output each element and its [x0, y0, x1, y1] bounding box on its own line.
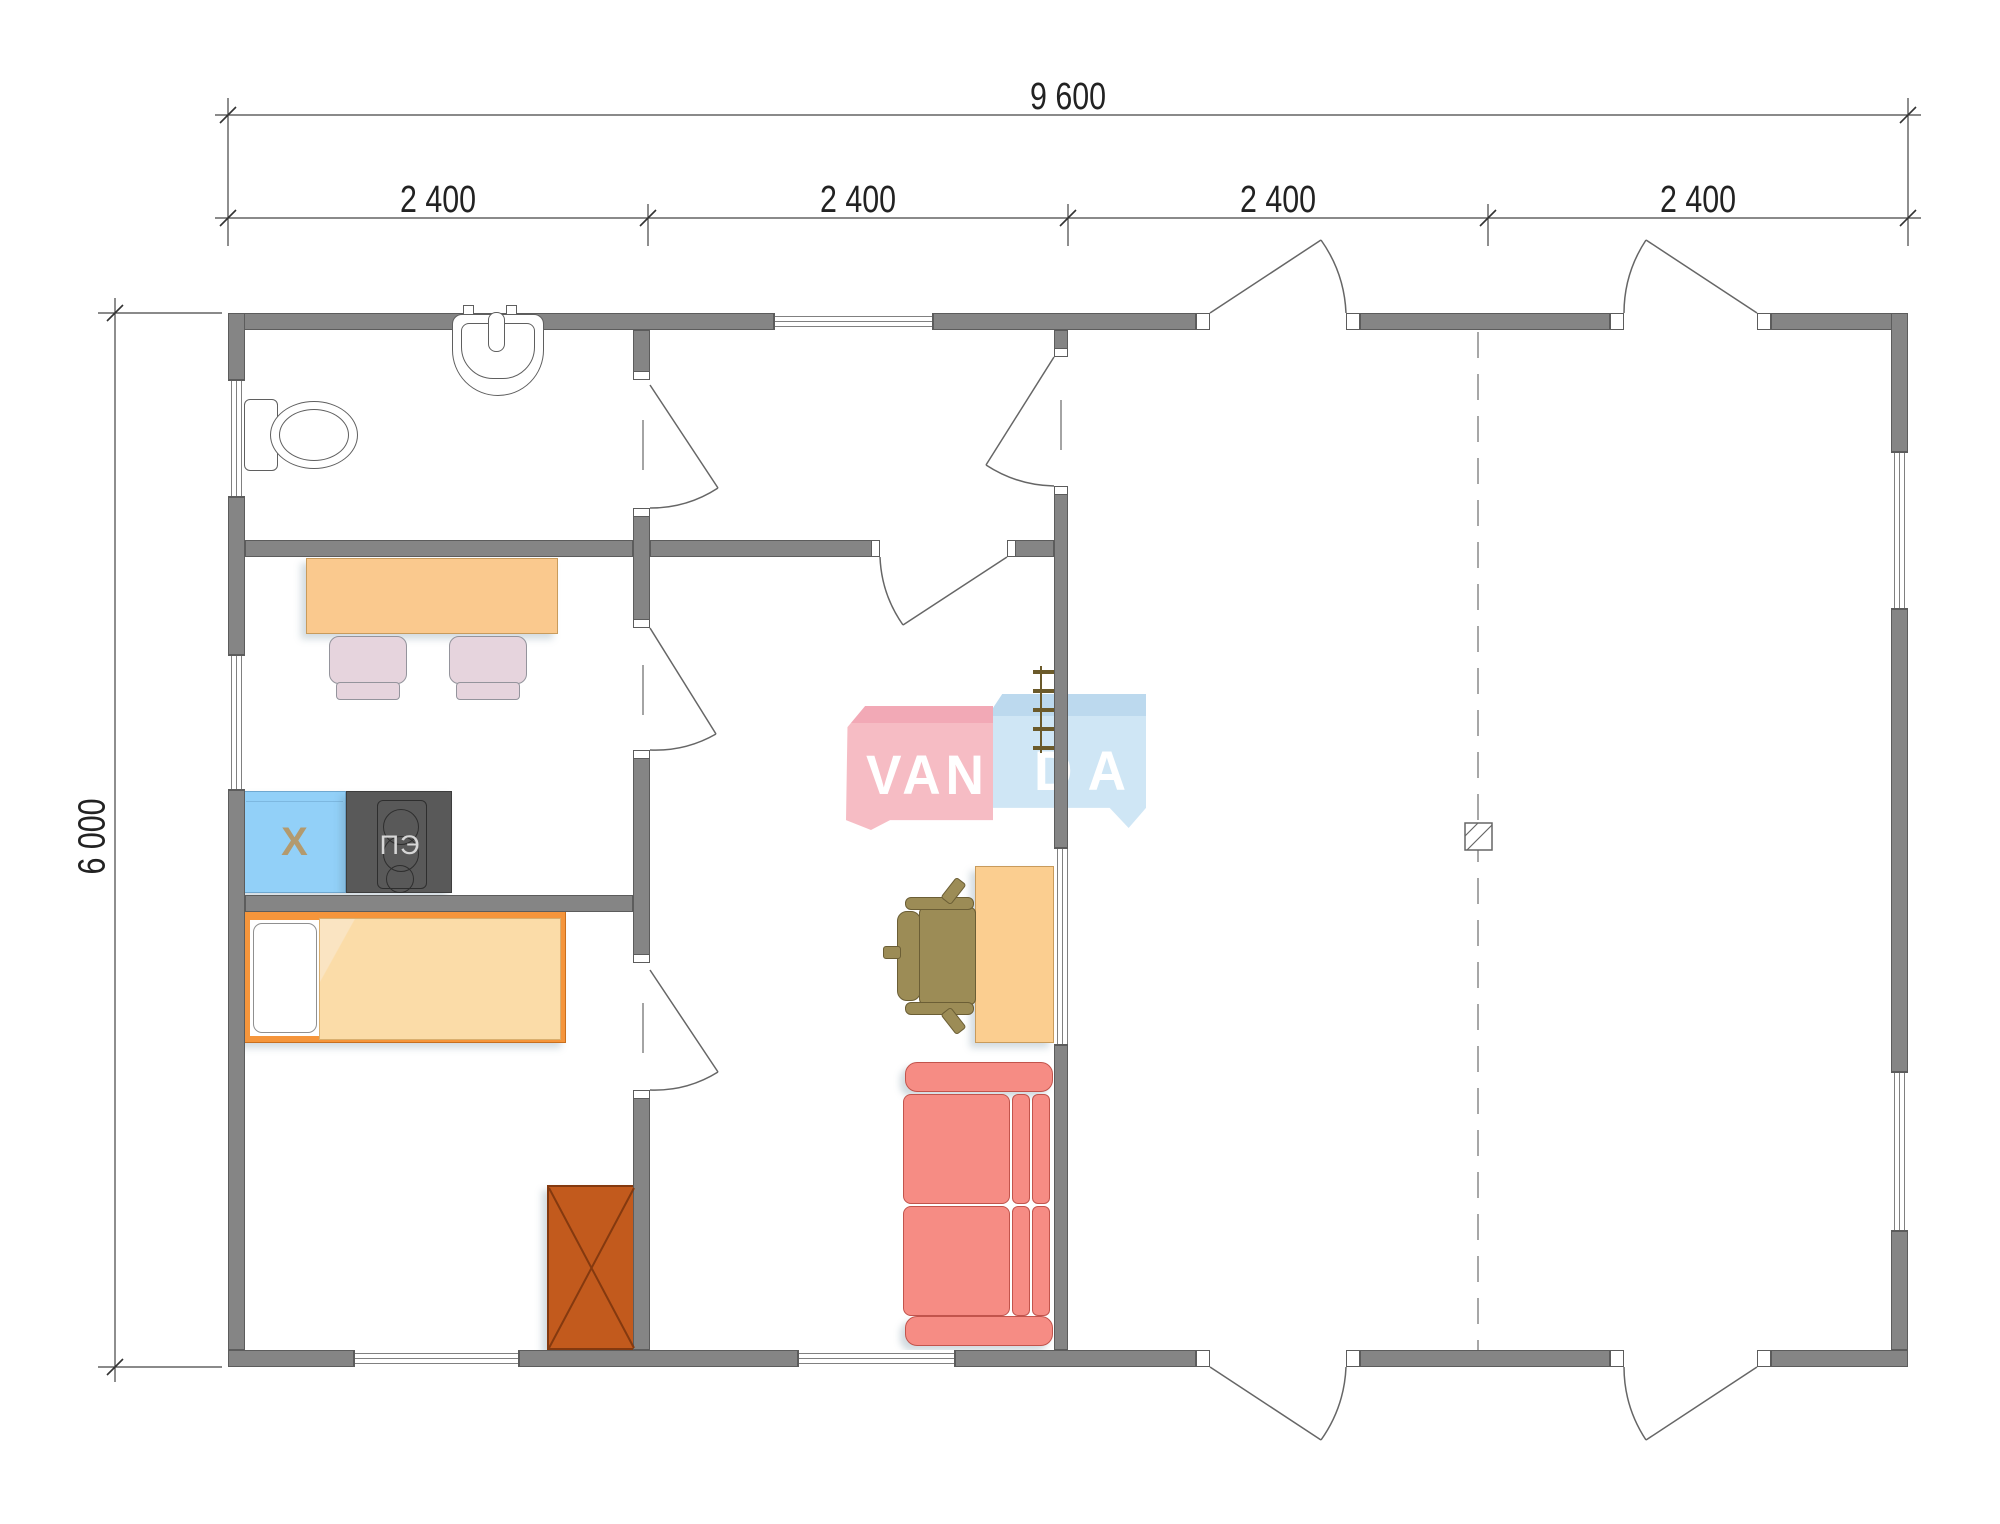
door-jamb [1346, 313, 1360, 330]
window-interior-living [1054, 848, 1068, 1045]
wall-interior-2b [1054, 486, 1068, 848]
wall-left-a [228, 313, 245, 380]
sofa-seat-1 [903, 1094, 1010, 1204]
fridge-door-line [246, 801, 343, 802]
wall-top-d [1771, 313, 1908, 330]
sofa-seat-2 [903, 1206, 1010, 1316]
wall-interior-1c [633, 750, 650, 963]
door-jamb [633, 954, 650, 963]
door-jamb [1610, 313, 1624, 330]
terrace-door-top-right [1624, 240, 1757, 313]
desk [975, 866, 1054, 1043]
window-top-vestibule [774, 313, 933, 330]
dimension-segment-1: 2 400 [374, 179, 502, 222]
door-jamb [1007, 540, 1016, 557]
sofa-back-cushion-2b [1032, 1206, 1050, 1316]
stove-label: ПЭ [352, 830, 448, 861]
sofa-armrest-top [905, 1062, 1053, 1092]
entrance-door [986, 357, 1061, 486]
door-jamb [1757, 313, 1771, 330]
window-left-kitchen [228, 655, 245, 790]
stove-burner-3 [386, 865, 414, 893]
logo-text-left: VAN [866, 742, 989, 807]
wall-top-b [933, 313, 1196, 330]
window-bottom-living [798, 1350, 955, 1367]
office-chair-seat [919, 907, 976, 1005]
wall-interior-3a [245, 540, 633, 557]
bedroom-door [643, 970, 718, 1090]
wall-right-b [1891, 609, 1908, 1072]
wall-bottom-e [1771, 1350, 1908, 1367]
bed-pillow [253, 923, 317, 1033]
wall-interior-4 [245, 895, 633, 912]
wall-interior-1b [633, 508, 650, 628]
fridge: Х [243, 791, 346, 893]
bed [241, 911, 566, 1043]
wall-right-a [1891, 313, 1908, 452]
kitchen-chair-1 [329, 636, 407, 684]
office-chair-armrest-top [905, 897, 974, 910]
wall-interior-3b [650, 540, 880, 557]
sofa-back-cushion-2a [1012, 1206, 1030, 1316]
dimension-total-width: 9 600 [1004, 76, 1132, 119]
door-jamb [1610, 1350, 1624, 1367]
wardrobe [547, 1185, 636, 1350]
office-chair-caster-left [883, 946, 901, 959]
window-right-lower [1891, 1072, 1908, 1231]
bed-blanket [319, 918, 561, 1040]
wall-left-c [228, 790, 245, 1350]
door-jamb [633, 1090, 650, 1099]
wall-bottom-d [1360, 1350, 1610, 1367]
office-chair-armrest-bottom [905, 1002, 974, 1015]
wall-bottom-a [228, 1350, 354, 1367]
dimension-segment-3: 2 400 [1214, 179, 1342, 222]
logo-text-right: DA [1034, 738, 1141, 803]
wall-top-c [1360, 313, 1610, 330]
dimension-total-height: 6 000 [72, 773, 115, 901]
kitchen-door [643, 628, 716, 750]
sofa-armrest-bottom [905, 1316, 1053, 1346]
electric-stove: ПЭ [346, 791, 452, 893]
toilet-bowl-rim [279, 409, 349, 461]
wall-left-b [228, 497, 245, 655]
sink-faucet [488, 312, 505, 352]
door-jamb [1757, 1350, 1771, 1367]
dimension-segment-2: 2 400 [794, 179, 922, 222]
door-jamb [1196, 1350, 1210, 1367]
terrace-door-bottom-right [1624, 1367, 1757, 1440]
bathroom-door [643, 385, 718, 508]
door-jamb [633, 508, 650, 517]
kitchen-chair-1-back [336, 682, 400, 700]
wall-bottom-c [955, 1350, 1196, 1367]
window-left-bathroom [228, 380, 245, 497]
door-jamb [1346, 1350, 1360, 1367]
kitchen-chair-2 [449, 636, 527, 684]
sofa-back-cushion-1b [1032, 1094, 1050, 1204]
kitchen-chair-2-back [456, 682, 520, 700]
dimension-segment-4: 2 400 [1634, 179, 1762, 222]
window-right-upper [1891, 452, 1908, 609]
terrace-door-bottom-left [1210, 1367, 1346, 1440]
kitchen-table [306, 558, 558, 634]
wall-bottom-b [519, 1350, 798, 1367]
column-symbol [1465, 823, 1492, 850]
door-jamb [871, 540, 880, 557]
wall-right-c [1891, 1231, 1908, 1350]
wall-interior-2c [1054, 1045, 1068, 1350]
window-bottom-bedroom [354, 1350, 519, 1367]
floor-plan-canvas: VAN DA Х ПЭ [0, 0, 2000, 1524]
door-jamb [1054, 348, 1068, 357]
door-jamb [1196, 313, 1210, 330]
fridge-label: Х [281, 820, 308, 865]
door-jamb [633, 750, 650, 759]
hall-door [880, 557, 1007, 625]
door-jamb [1054, 486, 1068, 495]
terrace-door-top-left [1210, 240, 1346, 313]
door-jamb [633, 619, 650, 628]
door-jamb [633, 371, 650, 380]
wall-interior-1d [633, 1090, 650, 1350]
sofa-back-cushion-1a [1012, 1094, 1030, 1204]
